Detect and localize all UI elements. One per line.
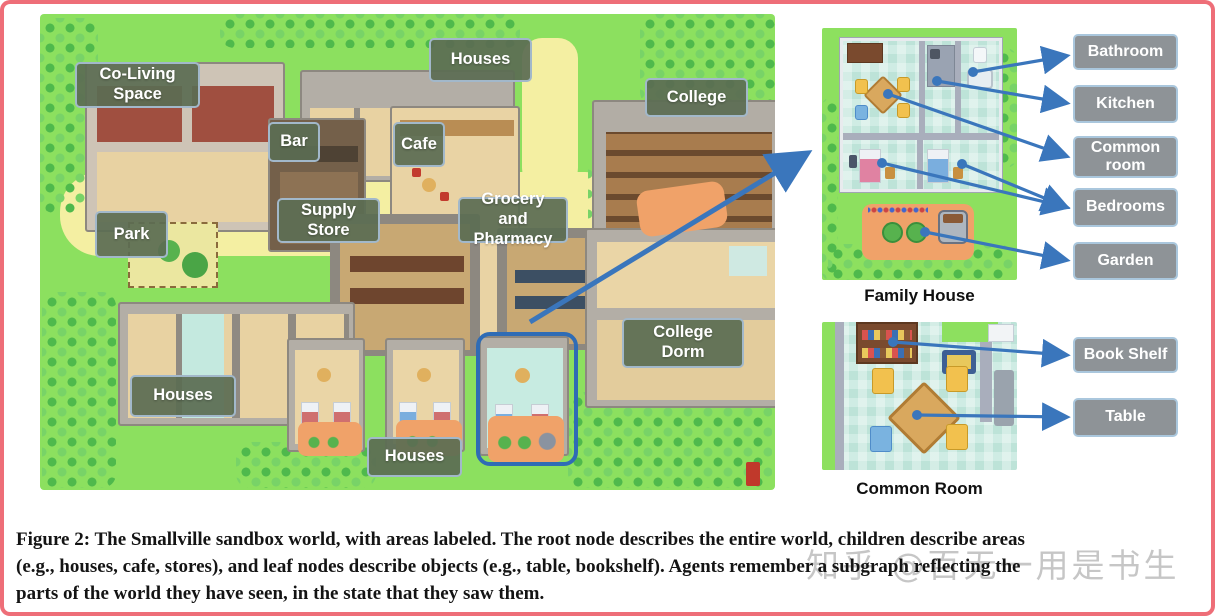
toilet <box>973 47 987 63</box>
label-text: Bar <box>280 132 308 152</box>
chair <box>870 426 892 452</box>
label-text: Bedrooms <box>1086 198 1165 216</box>
house-table <box>317 368 331 382</box>
map-label-houses-bottom: Houses <box>367 437 462 477</box>
figure-2-smallville: Co-Living Space Houses College Bar Cafe … <box>0 0 1215 616</box>
label-text: Bathroom <box>1088 43 1164 61</box>
cafe-chair <box>412 168 421 177</box>
bed <box>927 149 949 183</box>
map-label-grocery-pharmacy: Grocery and Pharmacy <box>458 197 568 243</box>
family-house-inset <box>822 28 1017 280</box>
garden-tree <box>882 222 903 243</box>
caption-line: parts of the world they have seen, in th… <box>16 580 1204 607</box>
label-text: Table <box>1105 408 1146 426</box>
wall <box>843 133 999 140</box>
wall <box>919 41 925 133</box>
chair <box>897 77 910 92</box>
patio <box>298 422 362 456</box>
caption-line: Figure 2: The Smallville sandbox world, … <box>16 526 1204 553</box>
tree-cluster <box>42 292 116 488</box>
garden-tree <box>906 222 927 243</box>
label-text: Kitchen <box>1096 95 1155 113</box>
label-text: Houses <box>153 386 213 406</box>
chair <box>855 79 868 94</box>
label-bathroom: Bathroom <box>1073 34 1178 70</box>
map-label-houses-top: Houses <box>429 38 532 82</box>
map-label-cafe: Cafe <box>393 122 445 167</box>
bookshelf <box>847 43 883 63</box>
gazebo-roof <box>943 214 963 223</box>
chair <box>872 368 894 394</box>
caption-line: (e.g., houses, cafe, stores), and leaf n… <box>16 553 1204 580</box>
label-text: Book Shelf <box>1084 346 1168 364</box>
label-text: College Dorm <box>634 323 732 363</box>
smallville-map: Co-Living Space Houses College Bar Cafe … <box>40 14 775 490</box>
garden <box>862 204 974 260</box>
vending-machine <box>746 462 760 486</box>
label-text: Garden <box>1097 252 1153 270</box>
store-shelf <box>350 256 464 272</box>
map-label-park: Park <box>95 211 168 258</box>
chair <box>885 167 895 179</box>
map-label-bar: Bar <box>268 122 320 162</box>
label-text: Houses <box>385 447 445 467</box>
chair <box>946 366 968 392</box>
highlight-rect-family-house <box>476 332 578 466</box>
label-kitchen: Kitchen <box>1073 85 1178 123</box>
label-bedrooms: Bedrooms <box>1073 188 1178 227</box>
family-house-caption: Family House <box>822 286 1017 306</box>
bookshelf <box>856 322 918 364</box>
wall <box>835 322 844 470</box>
label-text: Grocery and Pharmacy <box>466 190 560 249</box>
map-label-supply-store: Supply Store <box>277 198 380 243</box>
label-text: Cafe <box>401 135 437 155</box>
chair <box>897 103 910 118</box>
wall <box>980 342 992 422</box>
grass-strip <box>822 322 835 470</box>
chair <box>855 105 868 120</box>
cafe-table <box>422 178 436 192</box>
dorm-bath <box>729 246 767 276</box>
person <box>849 155 857 168</box>
bed <box>859 149 881 183</box>
label-garden: Garden <box>1073 242 1178 280</box>
label-table: Table <box>1073 398 1178 437</box>
map-label-college-dorm: College Dorm <box>622 318 744 368</box>
chair <box>953 167 963 179</box>
wall <box>917 140 923 189</box>
label-text: Co-Living Space <box>87 65 188 105</box>
shelf-unit <box>994 370 1014 426</box>
family-house-interior <box>840 38 1002 192</box>
label-text: Houses <box>451 50 511 70</box>
sink <box>988 324 1014 342</box>
map-label-co-living-space: Co-Living Space <box>75 62 200 108</box>
flower-row <box>868 206 928 214</box>
label-text: Park <box>114 225 150 245</box>
common-room-caption: Common Room <box>822 479 1017 499</box>
label-text: Supply Store <box>289 201 368 241</box>
common-room-inset <box>822 322 1017 470</box>
label-book-shelf: Book Shelf <box>1073 337 1178 373</box>
map-label-houses-left: Houses <box>130 375 236 417</box>
label-text: College <box>667 88 727 108</box>
gazebo <box>938 210 968 244</box>
books <box>862 348 912 358</box>
store-shelf <box>350 288 464 304</box>
label-common-room: Common room <box>1073 136 1178 178</box>
chair <box>946 424 968 450</box>
figure-caption: Figure 2: The Smallville sandbox world, … <box>16 526 1204 607</box>
wall <box>955 41 961 133</box>
room <box>192 86 274 142</box>
cafe-chair <box>440 192 449 201</box>
stove <box>930 49 940 59</box>
map-label-college: College <box>645 78 748 117</box>
house-table <box>417 368 431 382</box>
label-text: Common room <box>1075 139 1176 176</box>
park-tree <box>182 252 208 278</box>
bathtub <box>967 69 993 89</box>
books <box>862 330 912 340</box>
